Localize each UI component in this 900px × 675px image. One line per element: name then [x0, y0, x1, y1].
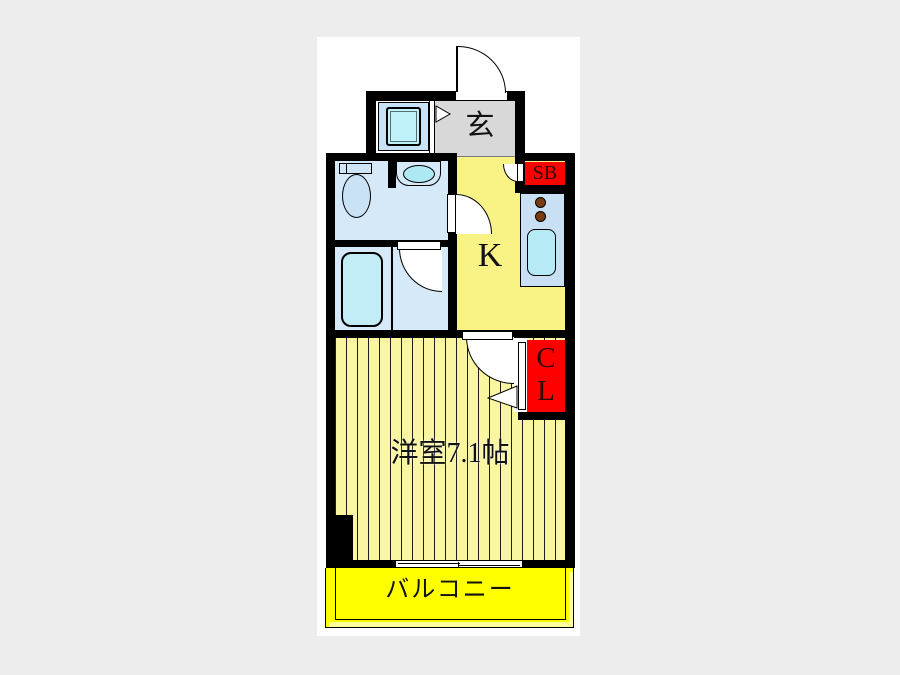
closet-door	[518, 342, 526, 410]
entrance-label: 玄	[450, 106, 510, 146]
wall	[326, 153, 335, 568]
stove-burner-icon	[535, 197, 546, 208]
closet-label: C L	[527, 342, 565, 408]
wall	[326, 153, 457, 161]
toilet-tank-divider	[346, 164, 347, 173]
washing-machine-icon	[386, 107, 421, 146]
wall	[518, 412, 570, 420]
wall	[565, 153, 575, 568]
window-sash-tick	[458, 562, 459, 567]
washbasin-sink-icon	[403, 165, 435, 183]
balcony-label: バルコニー	[350, 576, 550, 604]
wall	[388, 161, 396, 188]
bathroom-door-leaf	[397, 241, 441, 250]
wall	[326, 330, 570, 338]
screenshot-root: { "floor_plan": { "type": "apartment-flo…	[0, 0, 900, 675]
bathtub-icon	[341, 252, 383, 327]
shoe-box-door-leaf	[517, 163, 524, 182]
balcony-edge-right	[569, 572, 573, 627]
closet-label-c: C	[527, 342, 565, 375]
kitchen-sink-icon	[527, 229, 556, 276]
floor-plan: SB C L 玄 K 洋室7.1帖 バルコニー	[317, 37, 580, 636]
shoe-box-label: SB	[525, 162, 565, 185]
balcony-edge-bottom	[329, 622, 572, 627]
wall	[515, 153, 570, 161]
closet: C L	[527, 340, 565, 412]
entrance-door-leaf	[456, 46, 458, 92]
closet-direction-arrow-icon	[487, 385, 519, 409]
balcony-window-slider	[395, 560, 523, 568]
bath-partition-line	[391, 247, 393, 330]
window-rail	[458, 565, 520, 566]
closet-label-l: L	[527, 375, 565, 408]
kitchen-label: K	[460, 236, 520, 276]
shoe-box: SB	[525, 162, 565, 185]
main-room-label: 洋室7.1帖	[350, 439, 550, 469]
main-room-door-leaf	[462, 331, 513, 340]
wall	[448, 161, 457, 330]
doorway-jamb	[429, 101, 430, 153]
window-rail	[398, 563, 460, 564]
wall-pillar-notch	[326, 515, 353, 568]
entrance-door-swing	[458, 46, 506, 93]
wall	[524, 185, 565, 193]
wall	[515, 92, 525, 161]
washroom-door-leaf	[447, 194, 456, 233]
entry-direction-arrow-icon	[435, 105, 451, 123]
toilet-bowl-icon	[342, 174, 371, 218]
wall	[366, 92, 376, 161]
wall	[366, 91, 457, 101]
toilet-tank	[339, 163, 372, 174]
stove-burner-icon	[535, 211, 546, 222]
